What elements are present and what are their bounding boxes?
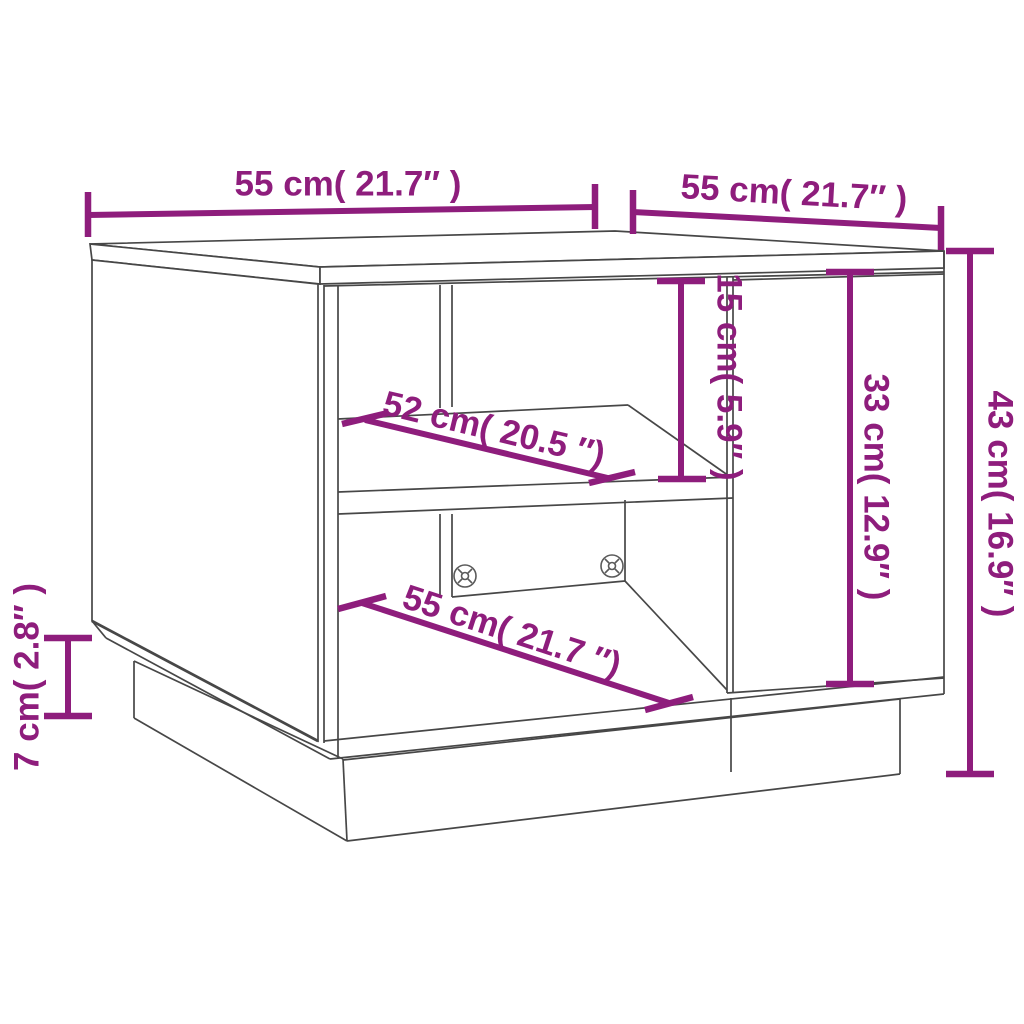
- dimension-diagram-page: 55 cm( 21.7″ ) 55 cm( 21.7″ ) 43 cm( 16.…: [0, 0, 1024, 1024]
- dim-door-height-label: 33 cm( 12.9″ ): [857, 374, 896, 601]
- screw-center: [609, 563, 616, 570]
- cam-lock-screw-icon: [454, 565, 476, 587]
- dim-shelf-opening-height-label: 15 cm( 5.9″ ): [710, 273, 749, 480]
- screw-center: [462, 573, 469, 580]
- dim-plinth-height-label: 7 cm( 2.8″ ): [8, 583, 47, 771]
- cam-lock-screw-icon: [601, 555, 623, 577]
- coffee-table-dimension-diagram: 55 cm( 21.7″ ) 55 cm( 21.7″ ) 43 cm( 16.…: [0, 0, 1024, 1024]
- dim-top-width-label: 55 cm( 21.7″ ): [235, 165, 462, 204]
- dim-height-label: 43 cm( 16.9″ ): [981, 391, 1020, 618]
